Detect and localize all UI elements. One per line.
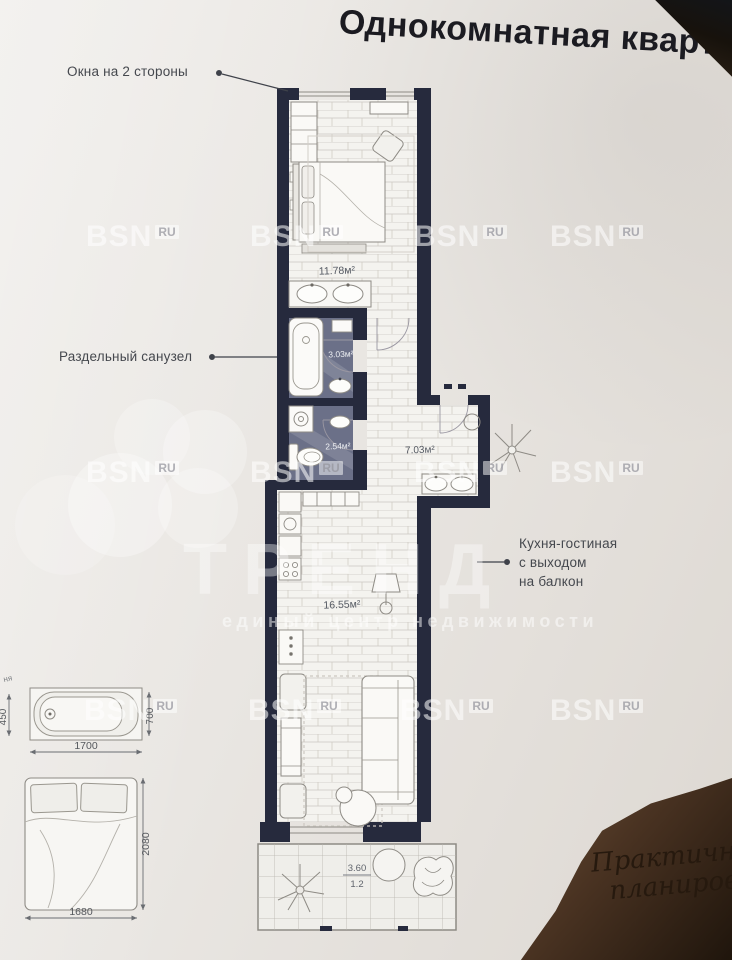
kitchen-area-label: 16.55м²: [323, 598, 361, 611]
balcony-chair-icon: [413, 857, 453, 897]
leader-dot: [210, 355, 215, 360]
side-table-icon: [281, 718, 301, 776]
bsn-watermark: BSNRU: [550, 222, 643, 252]
vanity-double-sink-icon: [289, 281, 371, 307]
sofa-icon: [362, 676, 414, 804]
armchair-icon: [280, 674, 306, 710]
bathtub-width-dim: 700: [145, 707, 156, 724]
armchair-icon: [280, 784, 306, 818]
flower-logo-circle: [15, 475, 115, 575]
bsn-watermark: BSNRU: [550, 696, 643, 726]
wardrobe-icon: [291, 102, 317, 162]
hall-console-icon: [422, 474, 476, 494]
bathtub-length-dim: 1700: [74, 740, 98, 752]
flower-logo-circle: [163, 410, 247, 494]
callout-bathroom: Раздельный санузел: [59, 347, 192, 366]
entrance-plant-icon: [491, 424, 536, 472]
bedroom-area-label: 11.78м²: [319, 264, 356, 277]
bath-area-label: 3.03м²: [328, 349, 354, 360]
flower-logo-circle: [158, 468, 238, 548]
bed-length-dim: 2080: [140, 832, 152, 856]
flower-logo-circle: [68, 453, 172, 557]
bathtub-spec-icon: [30, 688, 142, 740]
floorplan-photo: { "title": "Однокомнатная квартира", "ca…: [0, 0, 732, 960]
bathtub-icon: [289, 318, 323, 396]
washing-machine-icon: [289, 406, 313, 432]
wc-sink-icon: [330, 416, 350, 428]
wc-area-label: 2.54м²: [325, 441, 351, 452]
bsn-watermark: BSNRU: [550, 458, 643, 488]
edge-cut-label: ня: [3, 673, 13, 684]
furniture-specs: 1700 700 450 ня 2080 1680: [0, 660, 200, 940]
flower-logo-circle: [114, 399, 190, 475]
floor-plan: 11.78м² 3.03м² 2.54м² 7.03м² 16.55м² 3.6…: [250, 78, 550, 940]
shelf-icon: [332, 320, 352, 332]
tv-stand-icon: [279, 630, 303, 664]
bathtub-height-dim: 450: [0, 708, 9, 725]
balcony-area-value: 3.60: [348, 863, 367, 874]
desk-icon: [370, 102, 408, 114]
balcony-area-reduced: 1.2: [350, 879, 363, 890]
hall-area-label: 7.03м²: [405, 444, 436, 456]
balcony-table-icon: [373, 849, 405, 881]
bsn-watermark: BSNRU: [86, 458, 179, 488]
callout-windows: Окна на 2 стороны: [67, 62, 188, 81]
leader-dot: [217, 71, 222, 76]
bed-width-dim: 1680: [69, 906, 93, 918]
bsn-watermark: BSNRU: [86, 222, 179, 252]
bed-spec-icon: [25, 778, 137, 910]
